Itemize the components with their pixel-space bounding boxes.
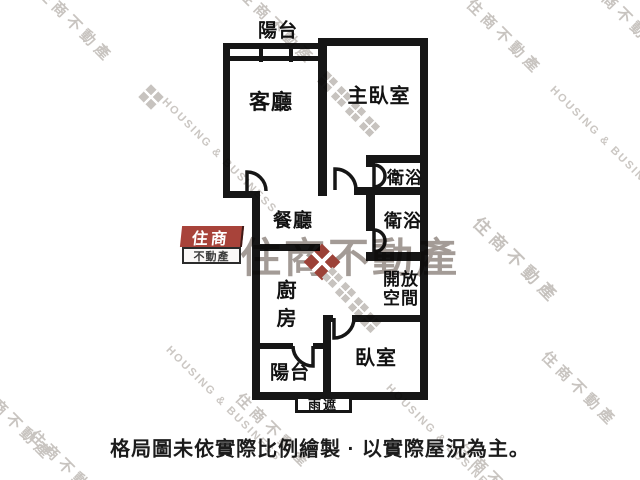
bedroom-door-arc <box>334 318 354 338</box>
entry-door-arc <box>247 172 266 191</box>
room-label-dining-room: 餐廳 <box>273 206 313 233</box>
room-label-kitchen: 廚房 <box>275 277 299 333</box>
brand-logo-name: 住商 <box>180 226 244 247</box>
room-label-rain-canopy: 雨遮 <box>308 395 338 414</box>
scale-disclaimer-text: 格局圖未依實際比例繪製 · 以實際屋況為主。 <box>110 433 530 462</box>
bathroom-lower-door-arc <box>374 230 385 252</box>
open-space-line1: 開放 <box>383 270 419 289</box>
room-label-open-space: 開放 空間 <box>383 270 419 308</box>
open-space-line2: 空間 <box>383 289 419 308</box>
bathroom-upper-door-arc <box>374 165 385 187</box>
floorplan-page: 陽台 客廳 主臥室 衛浴 衛浴 餐廳 廚房 開放 空間 臥室 陽台 雨遮 格局圖… <box>0 0 640 480</box>
brand-logo-subname: 不動產 <box>182 247 241 264</box>
room-label-balcony-bottom: 陽台 <box>270 358 310 385</box>
room-label-living-room: 客廳 <box>249 86 293 116</box>
room-label-bedroom: 臥室 <box>355 342 397 371</box>
brand-logo: 住商 不動產 <box>181 226 243 264</box>
room-label-bathroom-lower: 衛浴 <box>384 207 422 233</box>
room-label-bathroom-upper: 衛浴 <box>387 164 423 189</box>
master-bedroom-door-arc <box>335 169 356 190</box>
room-label-master-bedroom: 主臥室 <box>348 80 411 109</box>
room-label-balcony-top: 陽台 <box>258 16 298 43</box>
